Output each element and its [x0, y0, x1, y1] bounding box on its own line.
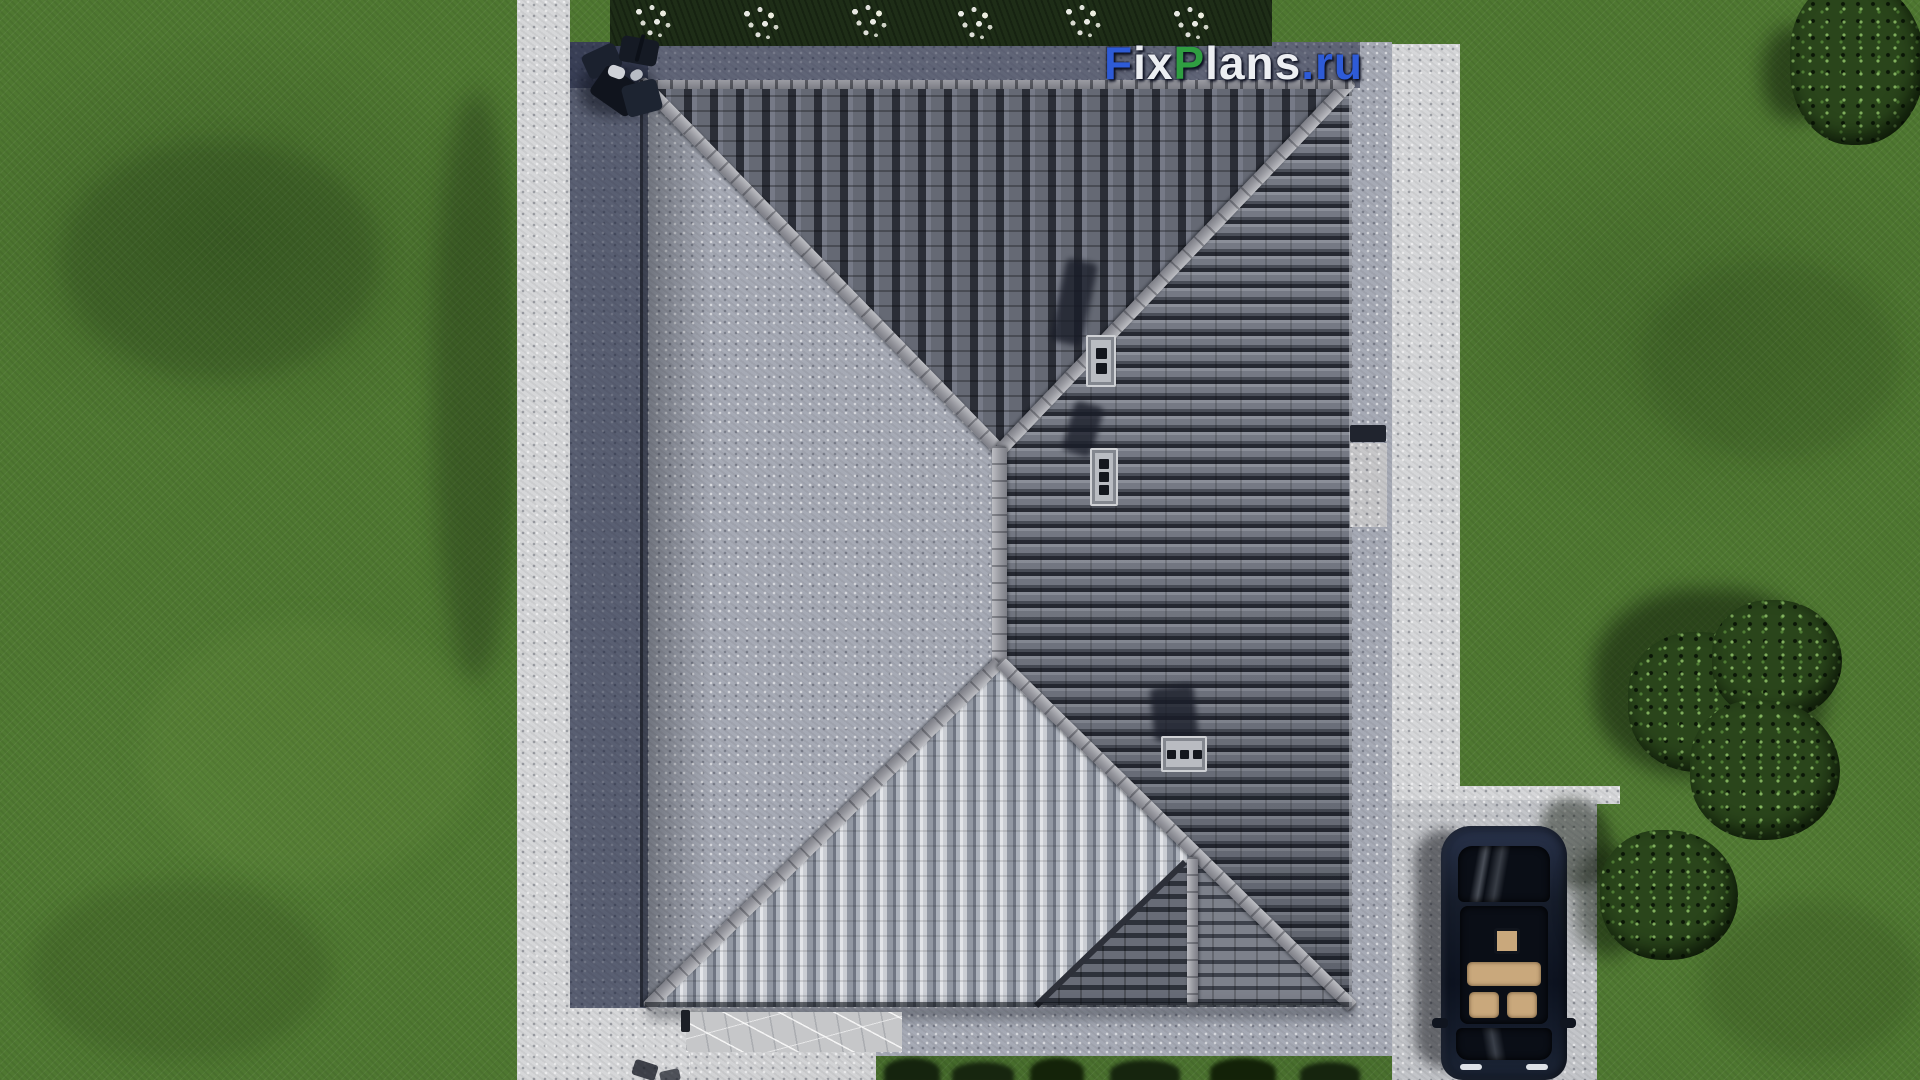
walkway-right	[1392, 44, 1460, 804]
chimney-flue	[1099, 459, 1109, 469]
tree-canopy	[1690, 700, 1840, 840]
car-glass-roof	[1460, 906, 1548, 1024]
chimney-3	[1161, 736, 1207, 772]
chimney-flue	[1096, 363, 1107, 374]
entrance-marble-slab	[686, 1012, 902, 1052]
car	[1441, 820, 1569, 1080]
chimney-flue	[1193, 750, 1202, 759]
chimney-flue	[1099, 472, 1109, 482]
grass-mottle	[140, 620, 480, 880]
car-mirror-left	[1432, 1018, 1448, 1028]
car-front-seat-left	[1469, 992, 1499, 1018]
chimney-flue	[1180, 750, 1189, 759]
watermark-segment: .ru	[1301, 37, 1363, 89]
chimney-flue	[1096, 348, 1107, 359]
watermark-segment: lans	[1205, 37, 1301, 89]
white-flower-cluster	[950, 2, 1000, 44]
entrance-step	[690, 1052, 876, 1080]
patio-furniture-group	[578, 36, 670, 122]
bush-top-bottom-edge	[884, 1058, 940, 1080]
bush-by-driveway	[1600, 830, 1738, 960]
watermark-segment: F	[1104, 37, 1133, 89]
bush-top-bottom-edge	[1030, 1058, 1084, 1080]
chimney-2	[1090, 448, 1118, 506]
car-headlight-right	[1526, 1064, 1548, 1070]
car-rear-window	[1458, 846, 1550, 902]
bush-top-bottom-edge	[952, 1062, 1014, 1080]
car-front-seat-right	[1507, 992, 1537, 1018]
porch-ridge-vertical	[1187, 857, 1198, 1007]
house-shadow-left	[565, 42, 648, 1042]
chimney-flue	[1167, 750, 1176, 759]
walkway-left	[517, 0, 570, 1080]
bush-top-bottom-edge	[1210, 1058, 1276, 1080]
car-windshield	[1456, 1028, 1552, 1060]
grass-mottle	[30, 880, 330, 1060]
house-roof	[640, 80, 1352, 1007]
white-flower-cluster	[844, 0, 894, 42]
chimney3-shadow	[1149, 684, 1198, 742]
bush-top-bottom-edge	[1110, 1060, 1180, 1080]
car-roof-box	[1494, 928, 1520, 954]
bush-top-right	[1790, 0, 1920, 145]
grass-mottle	[60, 140, 380, 380]
grass-mottle	[1640, 260, 1900, 460]
watermark-segment: ix	[1133, 37, 1173, 89]
fixplans-watermark: FixPlans.ru	[1104, 36, 1363, 90]
chimney-1	[1086, 335, 1116, 387]
eave-trim-left	[640, 80, 643, 1007]
path-shadow-on-grass	[432, 90, 520, 680]
car-rear-seat	[1467, 962, 1541, 986]
car-mirror-right	[1560, 1018, 1576, 1028]
ac-unit	[1350, 425, 1386, 442]
aerial-render-scene: FixPlans.ru	[0, 0, 1920, 1080]
grass-mottle	[1700, 900, 1920, 1060]
stone-pad-right	[1350, 443, 1387, 527]
eave-trim-right	[1349, 80, 1352, 1007]
main-ridge-center	[992, 446, 1007, 668]
downspout	[681, 1010, 690, 1032]
white-flower-cluster	[1058, 0, 1108, 42]
car-headlight-left	[1460, 1064, 1482, 1070]
watermark-segment: P	[1173, 37, 1205, 89]
white-flower-cluster	[736, 2, 786, 44]
bush-top-bottom-edge	[1300, 1062, 1360, 1080]
car-console	[1499, 990, 1507, 1020]
chimney-flue	[1099, 485, 1109, 495]
